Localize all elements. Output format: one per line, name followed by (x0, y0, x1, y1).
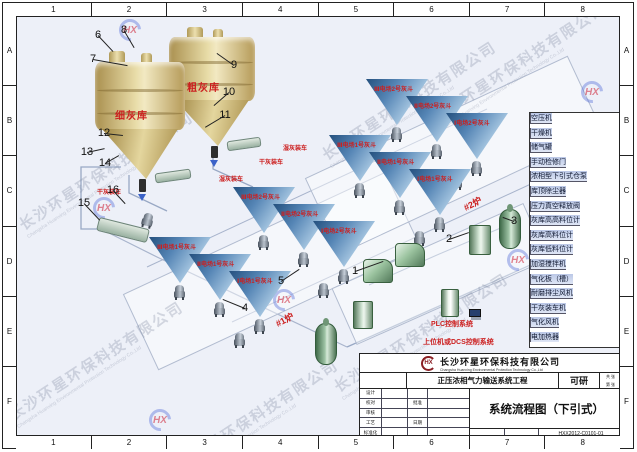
grid-col-4: 4 (242, 436, 318, 449)
legend-row: 2干燥机 (530, 128, 620, 143)
legend-row: 13耐磨排尘风机 (530, 288, 620, 303)
sig-value-cell (428, 409, 469, 418)
sig-value-cell (428, 418, 469, 427)
legend-row: 10灰库低料位计 (530, 244, 620, 259)
sig-label: 审核 (360, 409, 382, 418)
grid-row-E: E (3, 296, 16, 366)
signature-row: 标准化 (360, 428, 469, 436)
grid-row-D: D (620, 226, 633, 296)
coordinate-strip-bottom: 12345678 (16, 436, 620, 449)
grid-row-F: F (3, 366, 16, 436)
callout-leader-line (84, 203, 101, 221)
legend-row: 4手动检修门 (530, 157, 620, 172)
sig-label: 工艺 (360, 418, 382, 427)
grid-col-1: 1 (16, 3, 91, 16)
legend-row: 7压力真空释放阀 (530, 201, 620, 216)
drawing-number: HXX2012-C0101-01 (538, 429, 620, 436)
grid-row-C: C (3, 155, 16, 225)
callout-leader-line (124, 30, 135, 48)
sig-value-cell (382, 389, 408, 398)
legend-item-name: 储气罐 (530, 142, 552, 153)
grid-col-6: 6 (393, 436, 469, 449)
legend-row: 5浓相型下引式仓泵 (530, 171, 620, 186)
grid-row-F: F (620, 366, 633, 436)
callout-leader-line (98, 35, 114, 52)
legend-item-name: 灰库高高料位计 (530, 215, 580, 226)
legend-item-name: 耐磨排尘风机 (530, 288, 573, 299)
signature-grid: 设计校对批准审核工艺日期标准化 (360, 389, 470, 436)
coordinate-strip-top: 12345678 (16, 3, 620, 16)
legend-item-name: 空压机 (530, 113, 552, 124)
sig-value-cell (382, 428, 408, 436)
drawing-title: 系统流程图（下引式） (470, 389, 620, 428)
legend-item-name: 手动检修门 (530, 157, 566, 168)
grid-col-4: 4 (242, 3, 318, 16)
grid-col-3: 3 (166, 3, 242, 16)
grid-row-B: B (620, 85, 633, 155)
grid-col-3: 3 (166, 436, 242, 449)
sig-value-cell (382, 399, 408, 408)
grid-row-D: D (3, 226, 16, 296)
legend-item-name: 浓相型下引式仓泵 (530, 171, 587, 182)
legend-row: 8灰库高高料位计 (530, 215, 620, 230)
legend-item-name: 干燥机 (530, 128, 552, 139)
stage-mark: 可研 (558, 373, 599, 388)
signature-row: 工艺日期 (360, 418, 469, 428)
drawing-page: 12345678 12345678 ABCDEF ABCDEF 长沙环星环保科技… (0, 0, 637, 452)
legend-item-name: 电加热器 (530, 332, 559, 342)
sig-value-cell (382, 418, 408, 427)
sheet-count-cells: 共 张 第 张 (599, 373, 620, 388)
legend-table: 1空压机2干燥机3储气罐4手动检修门5浓相型下引式仓泵6库顶除尘器7压力真空释放… (529, 112, 620, 348)
sig-label: 设计 (360, 389, 382, 398)
grid-col-1: 1 (16, 436, 91, 449)
empty-cell (360, 373, 406, 388)
grid-row-E: E (620, 296, 633, 366)
sig-label: 标准化 (360, 428, 382, 436)
project-name: 正压浓相气力输送系统工程 (406, 373, 558, 388)
grid-col-7: 7 (469, 436, 545, 449)
signature-row: 审核 (360, 409, 469, 419)
legend-item-name: 压力真空释放阀 (530, 201, 580, 212)
callout-leader-line (355, 261, 383, 272)
title-block-company-row: HX 长沙环星环保科技有限公司 Changsha Huanxing Enviro… (360, 354, 620, 373)
legend-item-name: 加湿搅拌机 (530, 259, 566, 270)
callout-leader-line (93, 59, 127, 66)
legend-row: 3储气罐 (530, 142, 620, 157)
grid-col-8: 8 (544, 3, 620, 16)
legend-item-name: 气化风机 (530, 317, 559, 328)
sig-label2 (408, 428, 428, 436)
sig-value-cell (428, 389, 469, 398)
legend-item-name: 气化板（槽） (530, 274, 573, 285)
signature-row: 设计 (360, 389, 469, 399)
title-block-bottom-row: HXX2012-C0101-01 (470, 428, 620, 436)
title-block-project-row: 正压浓相气力输送系统工程 可研 共 张 第 张 (360, 373, 620, 389)
grid-col-2: 2 (91, 3, 167, 16)
legend-item-name: 库顶除尘器 (530, 186, 566, 197)
legend-row: 15气化风机 (530, 317, 620, 332)
empty-cell (504, 429, 538, 436)
sig-label2: 日期 (408, 418, 428, 427)
grid-col-8: 8 (544, 436, 620, 449)
coordinate-strip-left: ABCDEF (3, 16, 16, 436)
drawing-area: 长沙环星环保科技有限公司Changsha Huanxing Environmen… (16, 16, 620, 436)
sheet-total: 共 张 (606, 373, 615, 381)
legend-row: 9灰库高料位计 (530, 230, 620, 245)
sig-label2 (408, 409, 428, 418)
grid-col-7: 7 (469, 3, 545, 16)
legend-item-name: 灰库低料位计 (530, 244, 573, 255)
legend-item-name: 灰库高料位计 (530, 230, 573, 241)
sig-value-cell (428, 399, 469, 408)
legend-row: 1空压机 (530, 113, 620, 128)
grid-col-6: 6 (393, 3, 469, 16)
grid-row-A: A (620, 16, 633, 85)
title-block: HX 长沙环星环保科技有限公司 Changsha Huanxing Enviro… (359, 353, 620, 436)
sheet-index: 第 张 (606, 381, 615, 389)
company-name-cn: 长沙环星环保科技有限公司 (440, 355, 560, 368)
grid-row-A: A (3, 16, 16, 85)
grid-col-5: 5 (318, 436, 394, 449)
legend-row: 14干灰装车机 (530, 303, 620, 318)
callout-leader-line (205, 115, 226, 128)
callout-leader-line (214, 92, 230, 106)
sig-value-cell (428, 428, 469, 436)
sig-value-cell (382, 409, 408, 418)
legend-row: 11加湿搅拌机 (530, 259, 620, 274)
empty-cell (470, 429, 504, 436)
legend-row: 12气化板（槽） (530, 274, 620, 289)
company-name-en: Changsha Huanxing Environmental Protecti… (440, 368, 560, 372)
company-logo-icon: HX (421, 356, 436, 371)
legend-item-name: 干灰装车机 (530, 303, 566, 314)
grid-col-2: 2 (91, 436, 167, 449)
sig-label: 校对 (360, 399, 382, 408)
coordinate-strip-right: ABCDEF (620, 16, 633, 436)
legend-row: 6库顶除尘器 (530, 186, 620, 201)
grid-col-5: 5 (318, 3, 394, 16)
sig-label2 (408, 389, 428, 398)
grid-row-C: C (620, 155, 633, 225)
company-name: 长沙环星环保科技有限公司 Changsha Huanxing Environme… (440, 355, 560, 372)
signature-row: 校对批准 (360, 399, 469, 409)
grid-row-B: B (3, 85, 16, 155)
legend-row: 16电加热器 (530, 332, 620, 347)
sig-label2: 批准 (408, 399, 428, 408)
